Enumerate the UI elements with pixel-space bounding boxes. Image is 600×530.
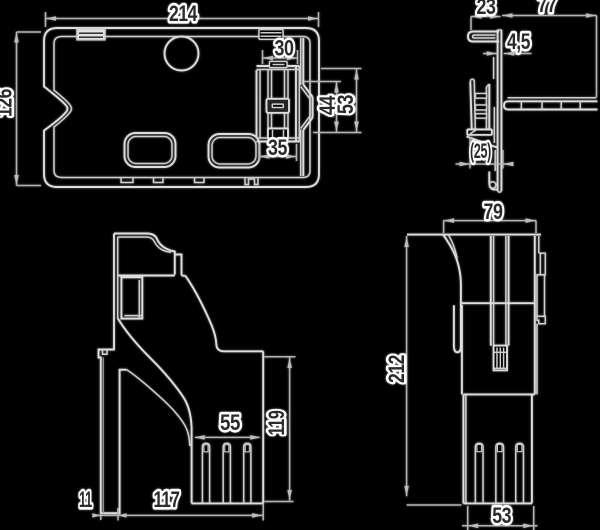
svg-text:55: 55: [220, 410, 240, 435]
svg-text:212: 212: [384, 355, 409, 383]
svg-text:214: 214: [169, 1, 198, 26]
svg-text:119: 119: [264, 410, 289, 435]
svg-text:53: 53: [492, 503, 511, 528]
svg-text:53: 53: [333, 95, 358, 114]
svg-text:35: 35: [268, 135, 287, 160]
svg-text:79: 79: [484, 199, 503, 224]
svg-text:117: 117: [154, 487, 180, 512]
svg-text:23: 23: [477, 0, 496, 19]
svg-text:77: 77: [538, 0, 557, 17]
svg-text:(25): (25): [470, 140, 491, 163]
svg-text:30: 30: [275, 36, 294, 61]
svg-text:4,5: 4,5: [507, 29, 530, 54]
svg-text:11: 11: [79, 487, 92, 512]
svg-text:126: 126: [0, 89, 17, 117]
